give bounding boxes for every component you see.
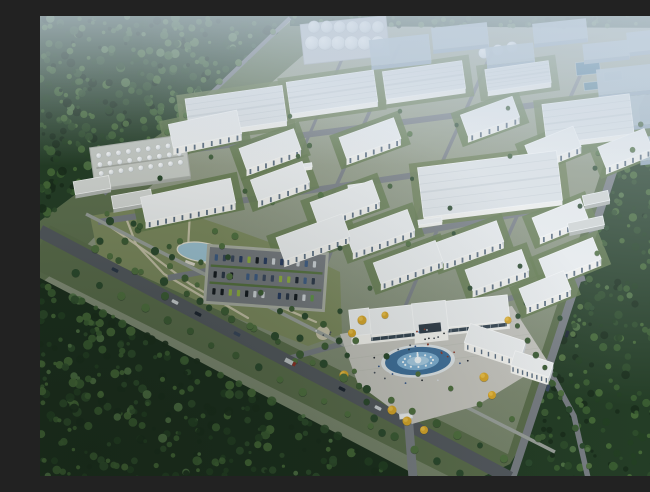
campus-aerial-rendering: [40, 16, 650, 476]
atmosphere-overlay: [40, 16, 650, 476]
rendering-canvas: [40, 16, 650, 476]
